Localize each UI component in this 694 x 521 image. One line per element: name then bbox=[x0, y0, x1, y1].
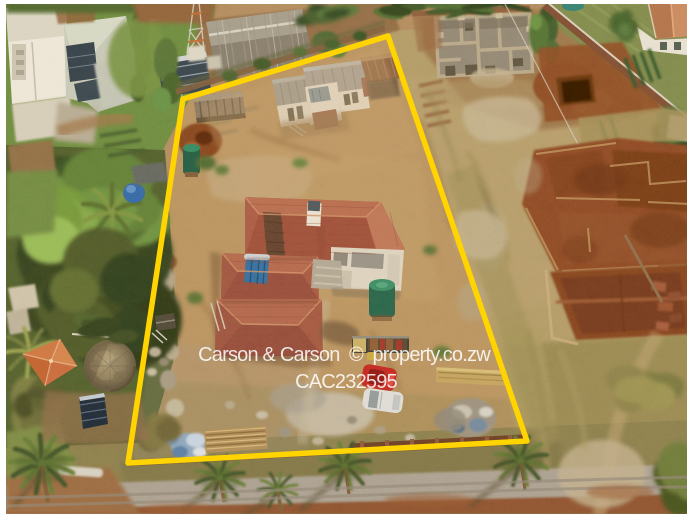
svg-text:CAC232595: CAC232595 bbox=[295, 371, 397, 393]
svg-text:Carson & Carson © property.c: Carson & Carson © property.co.zw bbox=[198, 344, 491, 366]
